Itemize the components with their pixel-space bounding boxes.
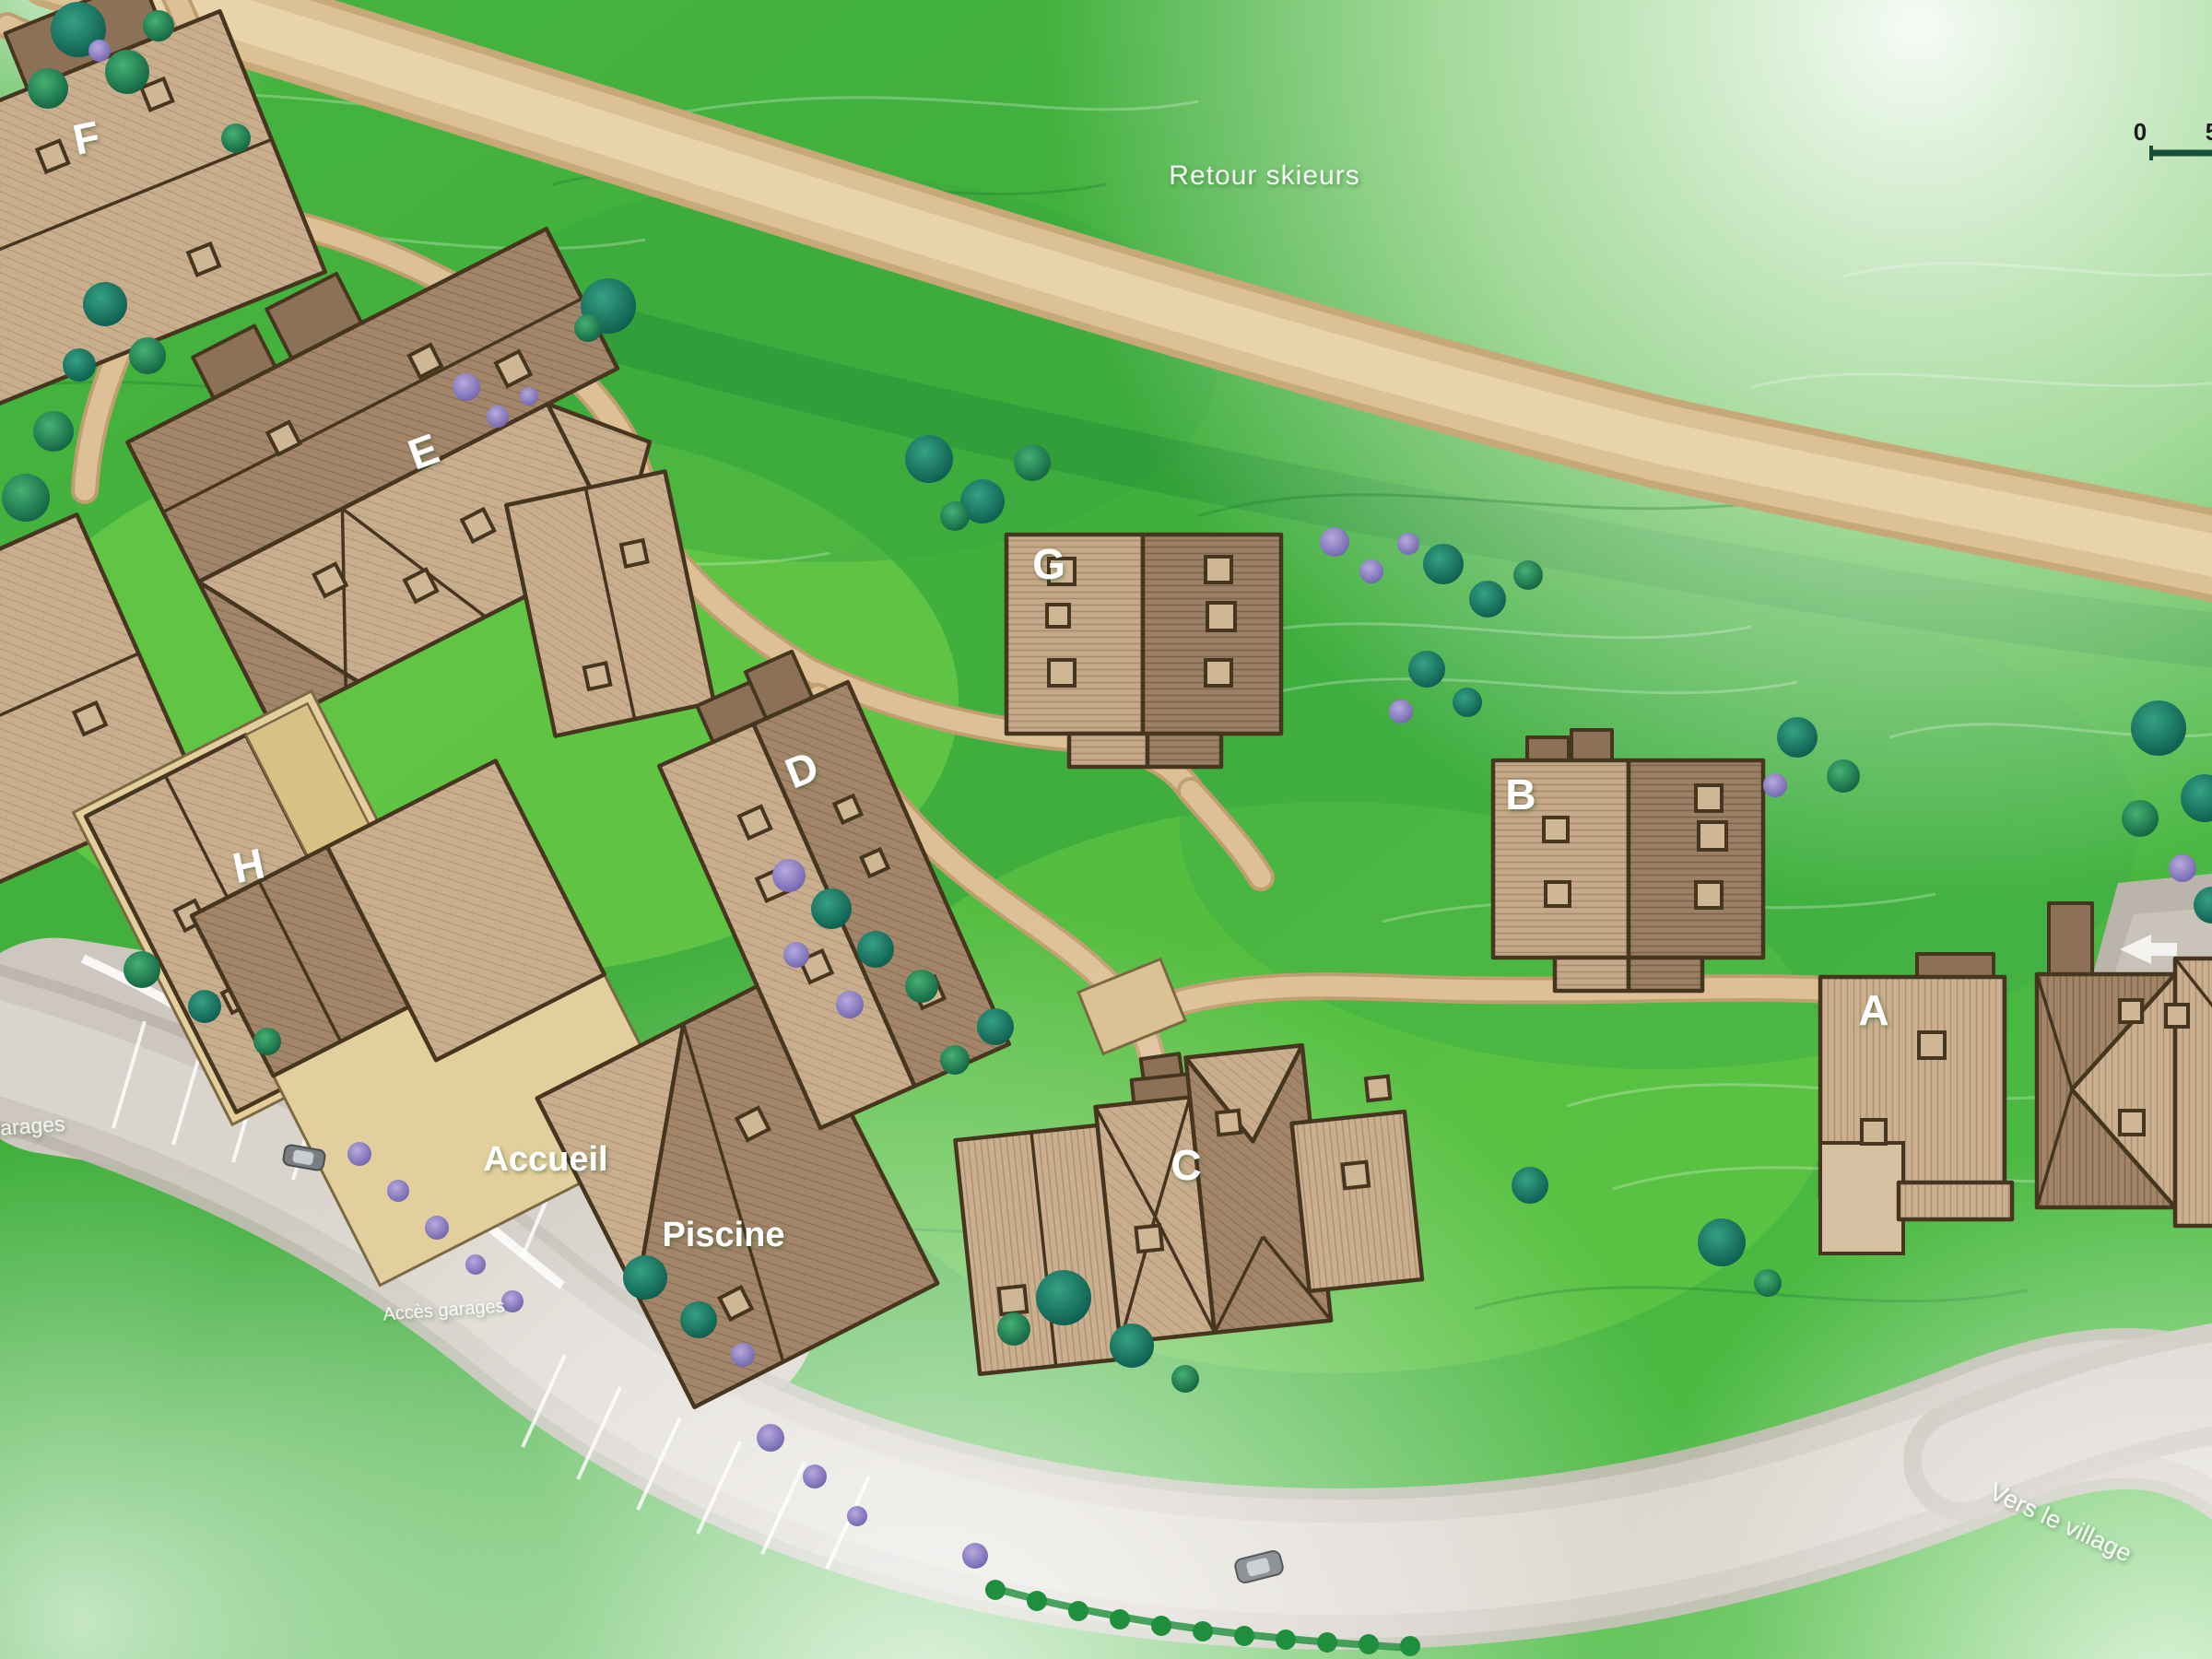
- scale-tick-start: 0: [2134, 118, 2147, 146]
- label-building-g: G: [1032, 540, 1065, 588]
- label-piscine: Piscine: [662, 1216, 784, 1254]
- site-plan-map: Retour skieurs F E G D B H C A Accueil P…: [0, 0, 2212, 1659]
- scale-tick-end: 5: [2206, 118, 2212, 146]
- label-building-c: C: [1171, 1141, 1201, 1189]
- building-b: [1493, 730, 1763, 991]
- map-canvas: Retour skieurs F E G D B H C A Accueil P…: [0, 0, 2212, 1659]
- label-building-b: B: [1505, 771, 1535, 818]
- label-retour-skieurs: Retour skieurs: [1169, 160, 1359, 191]
- label-accueil: Accueil: [483, 1140, 607, 1179]
- label-building-a: A: [1858, 986, 1888, 1034]
